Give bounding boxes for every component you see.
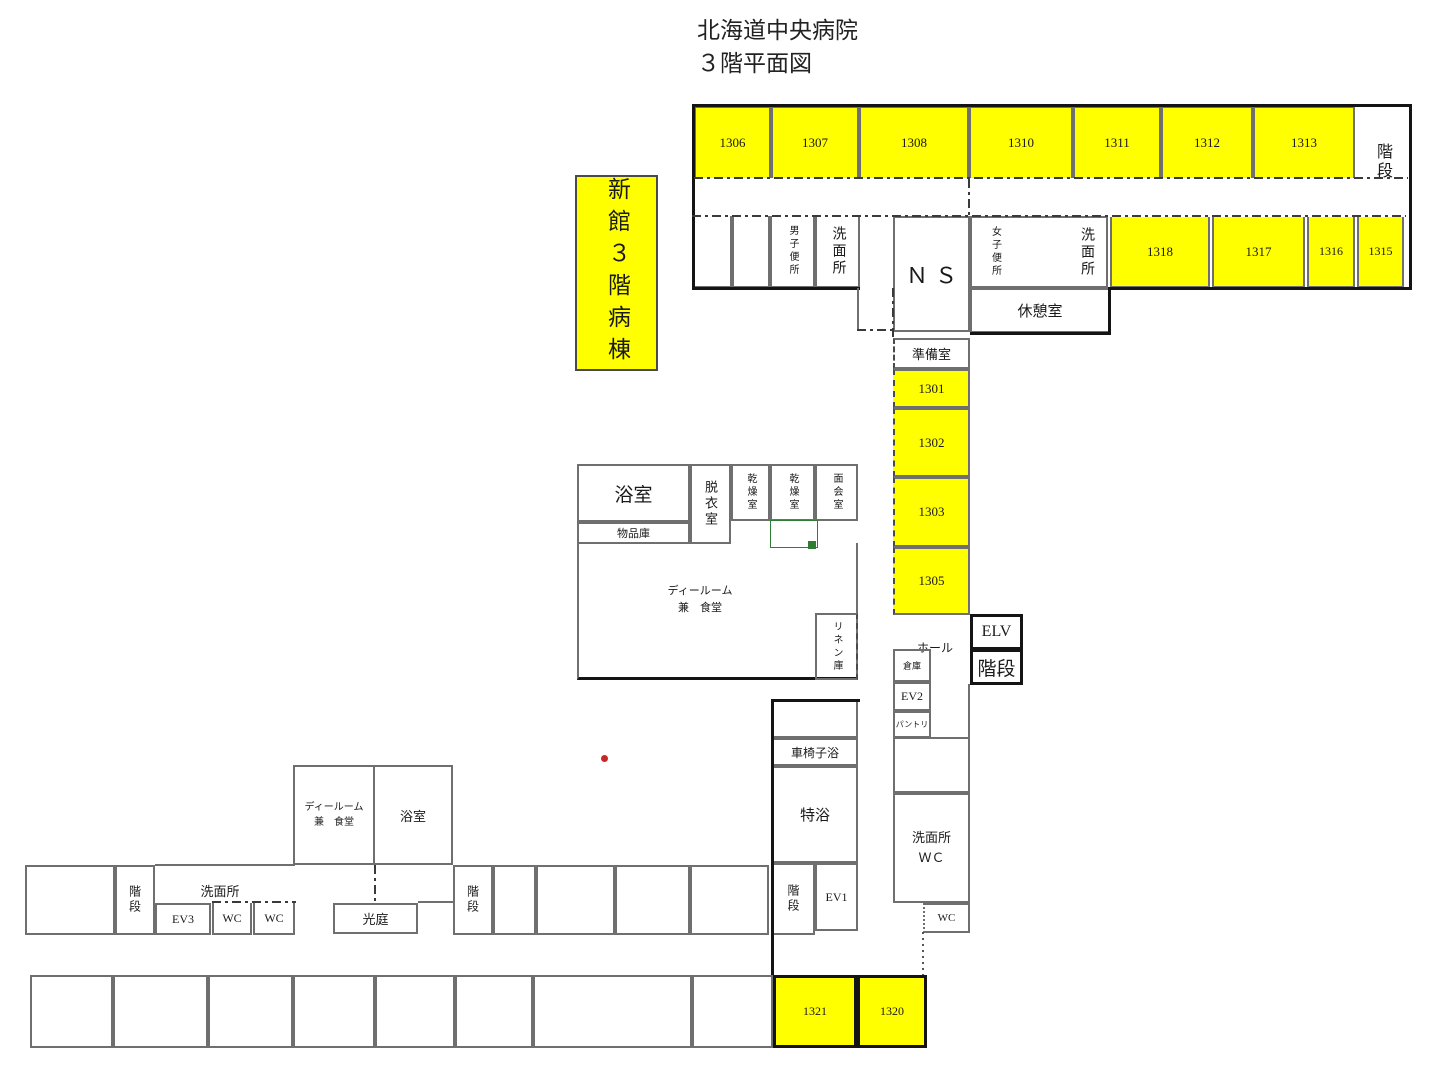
outer-wall-bottom-west [692,287,860,290]
elevator-ev3: EV3 [155,903,211,935]
green-square-marker [808,541,816,549]
storehouse: 倉庫 [893,649,931,682]
stairs-south: 階段 [772,863,815,935]
dotted-wc-passage [922,932,924,975]
room-1313: 1313 [1253,106,1355,178]
room-1312: 1312 [1161,106,1253,178]
dressing-room: 脱衣室 [690,464,731,544]
room-empty-o [692,975,773,1048]
room-empty-k [293,975,375,1048]
washroom-west: 洗面所 [815,216,860,288]
wc-small-right: WC [923,903,970,933]
corridor-door-ns [968,179,970,217]
room-1303: 1303 [893,477,970,547]
pantry: パントリ [893,711,931,738]
room-empty-j [208,975,293,1048]
floorplan-canvas: 北海道中央病院 ３階平面図 新館３階病棟 1306130713081310131… [0,0,1440,1079]
room-empty-n [533,975,692,1048]
wall-right-corridor [968,684,970,737]
drying-room-2: 乾燥室 [770,464,815,521]
room-1306: 1306 [694,106,771,178]
room-empty-a [692,216,732,288]
room-empty-l [375,975,455,1048]
light-court: 光庭 [333,903,418,934]
room-1317: 1317 [1212,217,1305,288]
room-empty-tokuyoku-top [772,700,858,738]
nurse-station: ＮＳ [893,216,970,332]
room-empty-i [113,975,208,1048]
stairs-mid: 階段 [453,865,493,935]
wing-name-label: 新館３階病棟 [575,175,658,371]
room-1305: 1305 [893,547,970,615]
outer-wall-bottom-east [1108,287,1412,290]
wc-west-1: WC [212,903,252,935]
stairs-top-right: 階段 [1360,112,1404,212]
room-1302: 1302 [893,408,970,477]
room-1315: 1315 [1357,217,1404,288]
room-empty-f [615,865,690,935]
corridor-line-top [694,177,1408,179]
page-title: 北海道中央病院 ３階平面図 [697,14,858,81]
womens-toilet-label: 女子便所 [978,220,1012,284]
corridor-line-wc-west [212,901,296,903]
room-1318: 1318 [1110,217,1210,288]
red-dot-marker [601,755,608,762]
wall-toilet-corner [857,288,859,331]
bath-main: 浴室 [577,464,690,522]
washroom-east-label: 洗面所 [1070,220,1102,284]
stairs-elv: 階段 [970,649,1023,685]
title-line-2: ３階平面図 [697,47,858,80]
stairs-west: 階段 [115,865,155,935]
elevator-ev2: EV2 [893,682,931,711]
corridor-door-west [857,329,895,331]
special-bath: 特浴 [772,766,858,863]
elevator-ev1: EV1 [815,863,858,931]
wheelchair-bath: 車椅子浴 [772,738,858,766]
room-empty-e [536,865,615,935]
corridor-line-mid [692,215,1406,217]
outer-wall-right [1409,104,1412,290]
room-empty-d [493,865,536,935]
room-1316: 1316 [1307,217,1355,288]
outer-wall-tokuyoku-top [771,699,860,702]
room-empty-h [30,975,113,1048]
room-empty-c [25,865,115,935]
break-room: 休憩室 [970,288,1110,333]
outer-wall-top [692,104,1412,107]
room-empty-g [690,865,769,935]
mens-toilet: 男子便所 [770,216,815,288]
visiting-room: 面会室 [815,464,858,521]
washroom-wc-upper [893,737,970,793]
linen-storage: リネン庫 [815,613,858,680]
room-1321: 1321 [773,975,857,1048]
wall-corridor-west-top [155,864,295,866]
drying-room-1: 乾燥室 [731,464,770,521]
room-empty-m [455,975,533,1048]
room-1320: 1320 [857,975,927,1048]
break-room-wall-right [1108,288,1111,335]
room-1311: 1311 [1073,106,1161,178]
washroom-wc: 洗面所 ＷＣ [893,793,970,903]
outer-wall-left [692,104,695,290]
corridor-line-ns-left [892,288,894,338]
room-1307: 1307 [771,106,859,178]
room-empty-b [732,216,770,288]
title-line-1: 北海道中央病院 [697,14,858,47]
outer-wall-tokuyoku-left [771,699,774,975]
wall-light-court-link [418,901,453,903]
break-room-wall-bottom [970,332,1111,335]
goods-storage: 物品庫 [577,522,690,544]
corridor-door-bath2 [374,865,376,903]
prep-room: 準備室 [893,338,970,369]
wc-west-2: WC [253,903,295,935]
bath-2: 浴室 [375,765,453,865]
room-1301: 1301 [893,369,970,408]
room-1310: 1310 [969,106,1073,178]
room-1308: 1308 [859,106,969,178]
day-room-main-label: ディールーム 兼 食堂 [640,578,760,622]
day-room-2: ディールーム 兼 食堂 [293,765,375,865]
washroom-label-west: 洗面所 [175,880,265,900]
elevator-elv: ELV [970,614,1023,650]
